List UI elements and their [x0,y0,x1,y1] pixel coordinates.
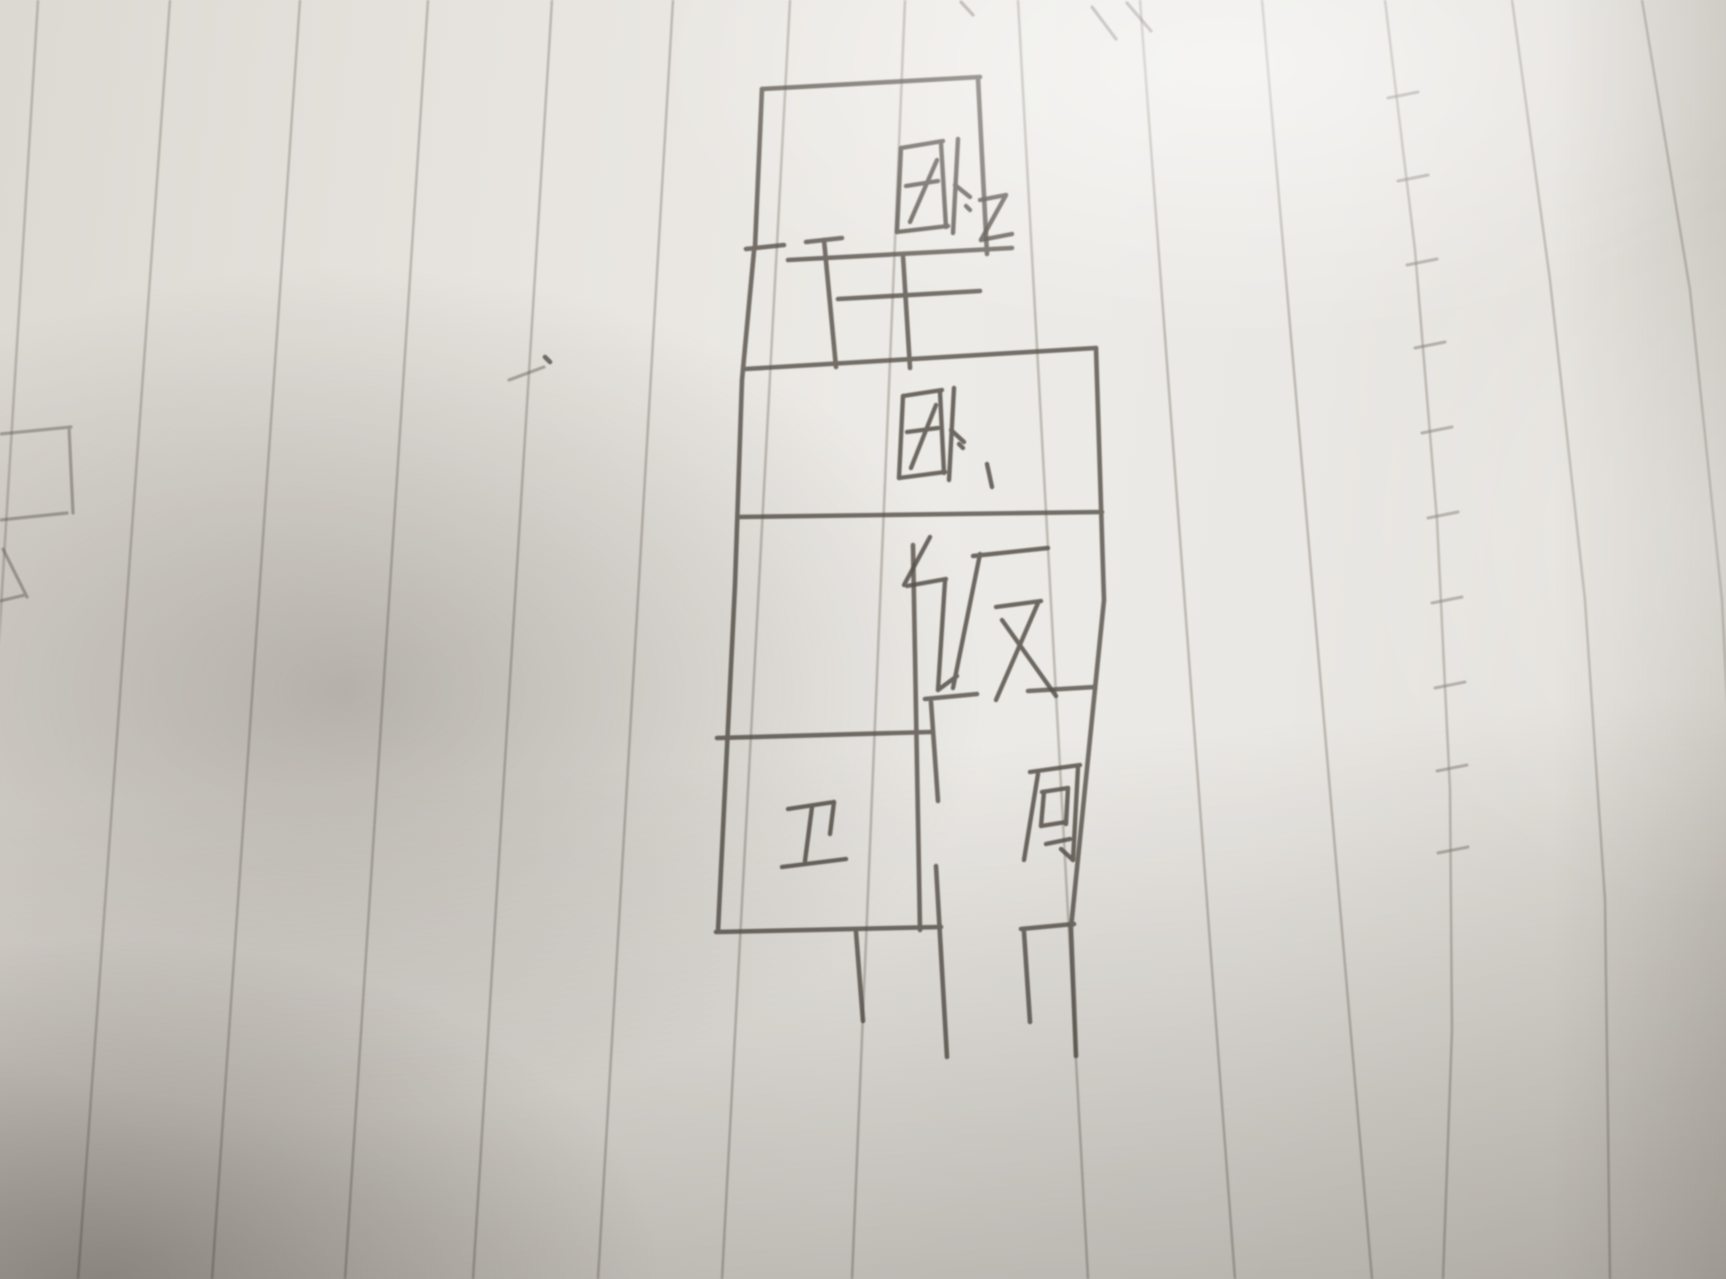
seam-ticks [1388,92,1468,853]
seam-tick [1435,682,1465,688]
rule-line [78,0,170,1279]
wall-segment [788,248,1012,260]
edge-mark [1127,3,1151,31]
wall-segment [716,927,941,932]
glyph-stroke [899,396,903,478]
edge-mark [3,549,27,597]
seam-tick [1428,512,1458,518]
floor-plan-sketch [0,0,1726,1279]
wall-segment [838,291,980,299]
glyph-stroke [941,143,946,227]
seam-tick [1432,597,1462,603]
wall-segment [1071,689,1095,1056]
edge-mark [0,513,67,520]
edge-mark [69,427,73,513]
rule-line [473,0,552,1279]
glyph-stroke [904,537,930,585]
seam-tick [1388,92,1418,98]
wall-segment [936,866,947,1057]
edge-mark [509,367,544,380]
wall-segment [931,702,938,801]
wall-segment [856,932,863,1021]
glyph-stroke [996,603,1038,700]
seam-tick [1415,342,1445,348]
wall-segment [746,245,784,249]
glyph-stroke [953,554,980,688]
glyph-stroke [906,181,938,186]
photo-of-floor-plan-sketch: 卧·2 Bedroom 2 卧·1 Bedroom 1 饭 Dining 卫 B… [0,0,1726,1279]
glyph-stroke [987,464,992,487]
glyph-stroke [907,428,938,432]
rule-line [1262,0,1372,1279]
label-bedroom-2 [897,139,1012,240]
seam-tick [1407,259,1437,265]
glyph-stroke [938,581,945,690]
wall-segment [755,89,762,247]
wall-segment [1024,932,1030,1022]
edge-mark [0,595,25,601]
glyph-stroke [782,859,846,867]
wall-segment [745,348,1096,369]
glyph-stroke [899,472,945,478]
glyph-stroke [897,226,948,232]
glyph-stroke [1030,765,1080,772]
glyph-stroke [911,405,936,468]
rule-line [598,0,673,1279]
seam-tick [1422,427,1452,433]
glyph-stroke [910,160,937,222]
rule-line [1512,0,1610,1279]
glyph-stroke [940,392,944,473]
rule-line [1385,0,1452,1279]
glyph-stroke [1041,792,1044,826]
rule-line [1018,0,1088,1279]
glyph-stroke [805,807,812,861]
glyph-stroke [1066,788,1068,824]
wall-segment [903,256,910,368]
label-kitchen [1024,765,1080,860]
seam-tick [1398,175,1428,181]
wall-segment [1021,924,1074,929]
glyph-stroke [1002,620,1056,696]
wall-segment [762,77,980,89]
glyph-stroke [830,802,834,834]
glyph-stroke [901,141,943,148]
glyph-stroke [996,601,1041,607]
seam-tick [1437,765,1467,771]
rule-line [1140,0,1235,1279]
glyph-stroke [903,390,942,396]
smudge-dot [545,357,550,362]
label-bathroom [782,802,846,867]
glyph-stroke [973,548,1048,556]
smudge [545,357,550,362]
edge-mark [1092,7,1116,39]
wall-segment [717,732,931,738]
rule-line [0,0,38,1279]
rule-line [212,0,300,1279]
wall-segment [718,251,754,931]
rule-lines [0,0,1726,1279]
glyph-stroke [1024,774,1038,860]
glyph-stroke [959,444,963,448]
label-bedroom-1 [899,388,992,487]
rule-line [345,0,428,1279]
edge-mark [961,2,973,15]
rule-line [1642,0,1726,760]
glyph-stroke [966,206,970,210]
label-dining [904,537,1056,700]
wall-segment [1028,687,1095,691]
wall-segment [913,545,920,930]
wall-segment [925,694,977,699]
glyph-stroke [1046,839,1070,844]
seam-tick [1438,847,1468,853]
wall-segment [1095,348,1104,689]
